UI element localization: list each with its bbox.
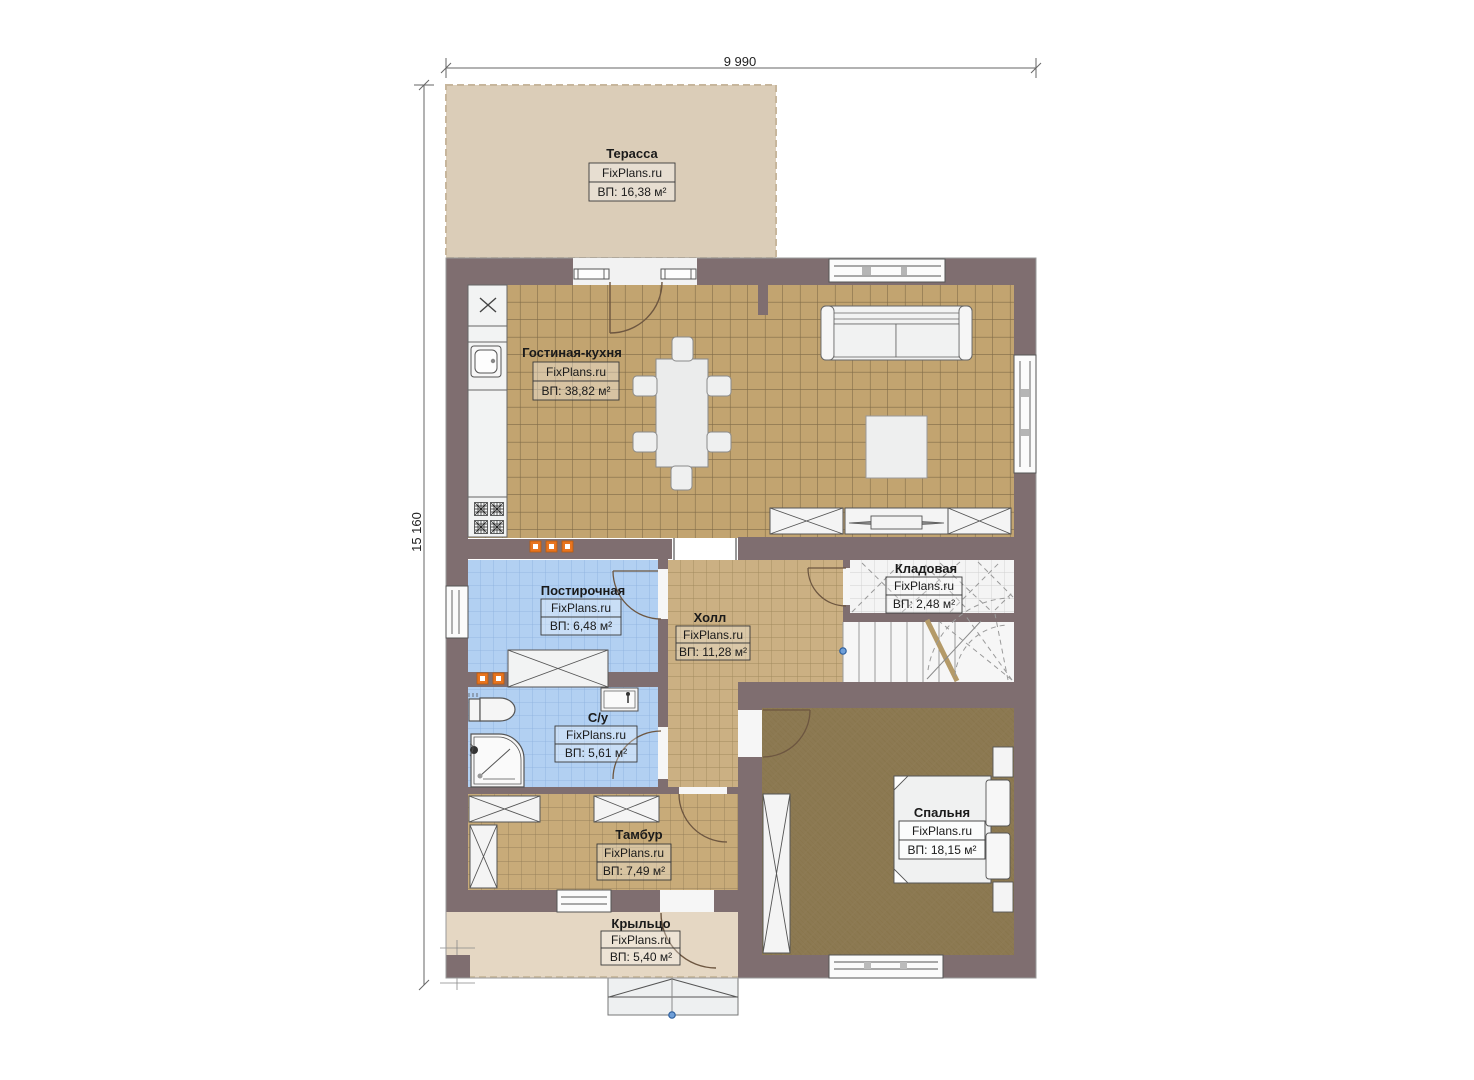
svg-text:ВП: 7,49 м²: ВП: 7,49 м² (603, 864, 665, 878)
svg-text:FixPlans.ru: FixPlans.ru (602, 166, 662, 180)
svg-text:ВП: 16,38 м²: ВП: 16,38 м² (598, 185, 667, 199)
svg-text:Спальня: Спальня (914, 805, 970, 820)
svg-text:9 990: 9 990 (724, 54, 757, 69)
svg-text:FixPlans.ru: FixPlans.ru (551, 601, 611, 615)
svg-text:Терасса: Терасса (606, 146, 658, 161)
svg-text:Крыльцо: Крыльцо (611, 916, 670, 931)
svg-text:FixPlans.ru: FixPlans.ru (566, 728, 626, 742)
svg-text:FixPlans.ru: FixPlans.ru (683, 628, 743, 642)
svg-text:FixPlans.ru: FixPlans.ru (546, 365, 606, 379)
svg-text:ВП: 38,82 м²: ВП: 38,82 м² (542, 384, 611, 398)
svg-text:Гостиная-кухня: Гостиная-кухня (522, 345, 622, 360)
svg-text:FixPlans.ru: FixPlans.ru (912, 824, 972, 838)
svg-text:ВП: 6,48 м²: ВП: 6,48 м² (550, 619, 612, 633)
svg-text:ВП: 18,15 м²: ВП: 18,15 м² (908, 843, 977, 857)
svg-text:ВП: 11,28 м²: ВП: 11,28 м² (679, 645, 747, 659)
svg-text:Постирочная: Постирочная (541, 583, 625, 598)
svg-text:Кладовая: Кладовая (895, 561, 957, 576)
svg-text:ВП: 2,48 м²: ВП: 2,48 м² (893, 597, 955, 611)
svg-text:15 160: 15 160 (409, 512, 424, 552)
svg-text:ВП: 5,61 м²: ВП: 5,61 м² (565, 746, 627, 760)
svg-text:FixPlans.ru: FixPlans.ru (894, 579, 954, 593)
svg-text:Холл: Холл (694, 610, 727, 625)
svg-text:Тамбур: Тамбур (615, 827, 662, 842)
svg-text:ВП: 5,40 м²: ВП: 5,40 м² (610, 950, 672, 964)
svg-text:FixPlans.ru: FixPlans.ru (611, 933, 671, 947)
svg-text:FixPlans.ru: FixPlans.ru (604, 846, 664, 860)
svg-text:С/у: С/у (588, 710, 609, 725)
